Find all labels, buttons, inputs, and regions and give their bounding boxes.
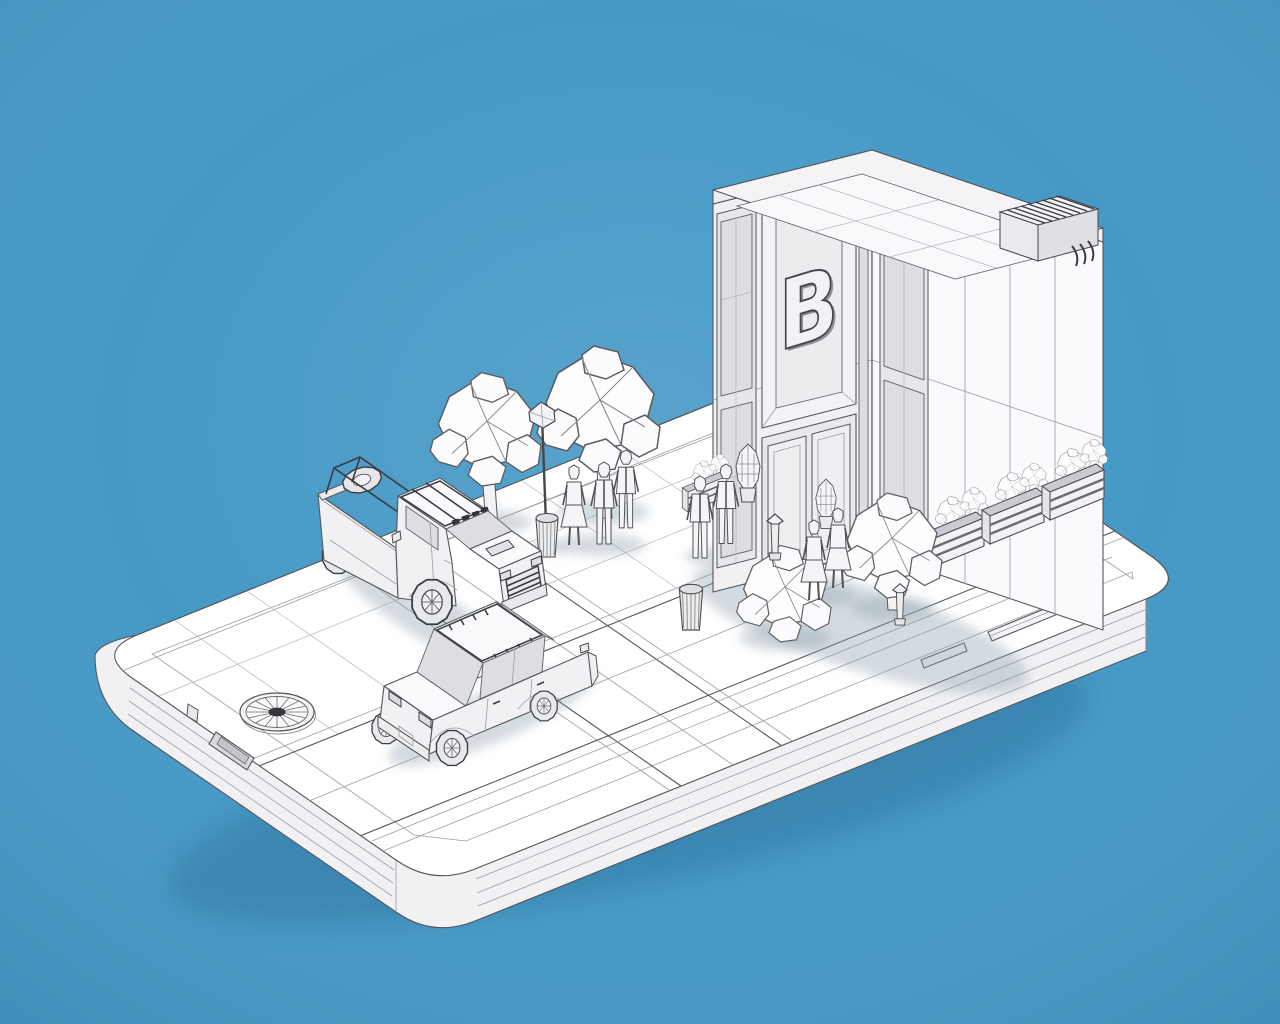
truck-front-wheel (412, 580, 452, 625)
camera-pupil (269, 708, 285, 716)
render-canvas: B B (0, 0, 1280, 1024)
sedan-rear-wheel (437, 731, 468, 766)
building-logo-letter: B (778, 245, 838, 375)
sedan-front-wheel (531, 691, 557, 721)
trash-can (679, 584, 702, 630)
